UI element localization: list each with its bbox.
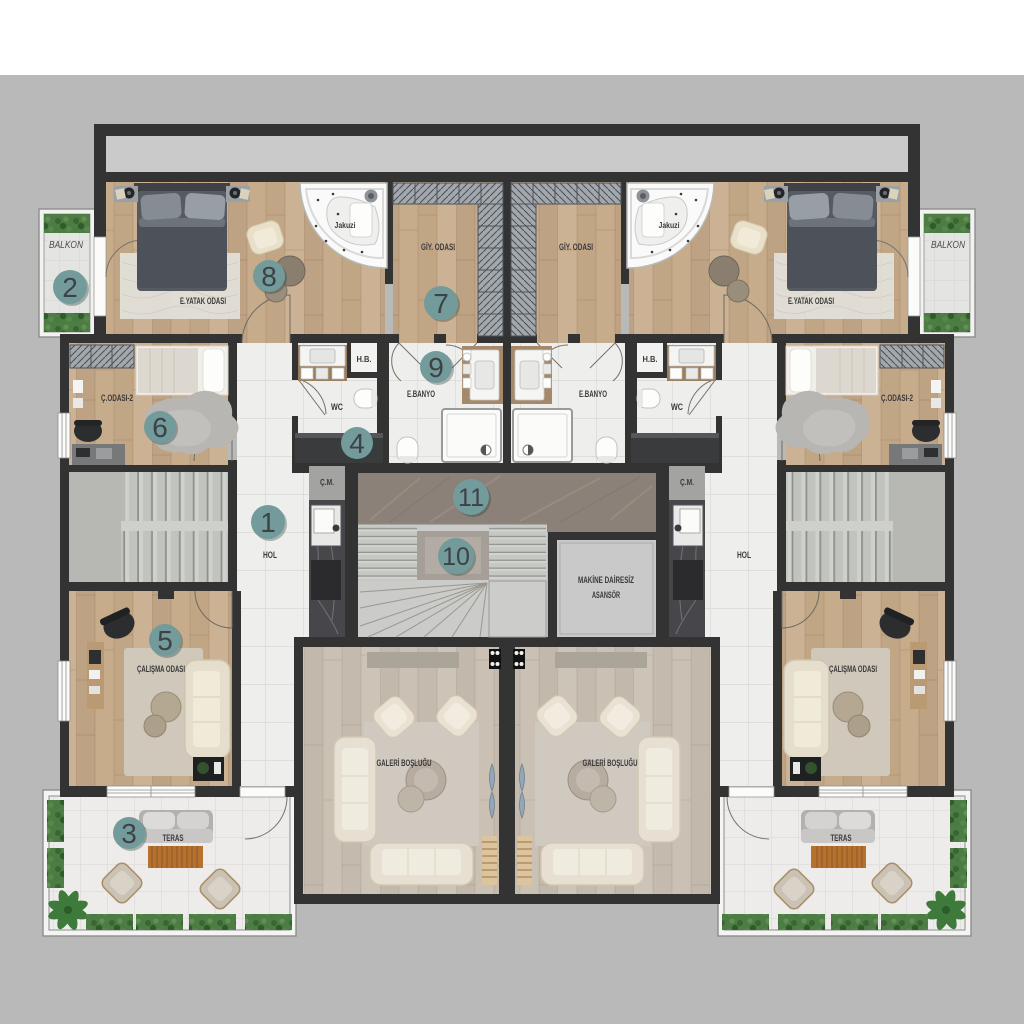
svg-text:H.B.: H.B. bbox=[357, 355, 372, 364]
svg-text:WC: WC bbox=[331, 402, 343, 413]
svg-text:GALERİ BOŞLUĞU: GALERİ BOŞLUĞU bbox=[583, 757, 638, 769]
svg-text:H.B.: H.B. bbox=[643, 355, 658, 364]
svg-text:Ç.M.: Ç.M. bbox=[320, 478, 334, 487]
svg-text:E.YATAK ODASI: E.YATAK ODASI bbox=[180, 296, 226, 307]
svg-text:3: 3 bbox=[121, 818, 137, 849]
svg-text:9: 9 bbox=[428, 352, 444, 383]
svg-text:2: 2 bbox=[62, 272, 78, 303]
svg-text:GALERİ BOŞLUĞU: GALERİ BOŞLUĞU bbox=[377, 757, 432, 769]
svg-text:HOL: HOL bbox=[263, 550, 277, 561]
svg-text:E.YATAK ODASI: E.YATAK ODASI bbox=[788, 296, 834, 307]
svg-text:BALKON: BALKON bbox=[931, 240, 966, 251]
svg-text:GİY. ODASI: GİY. ODASI bbox=[559, 242, 593, 253]
svg-text:8: 8 bbox=[261, 261, 277, 292]
svg-text:ASANSÖR: ASANSÖR bbox=[592, 590, 620, 601]
svg-text:BALKON: BALKON bbox=[49, 240, 84, 251]
svg-text:5: 5 bbox=[157, 625, 173, 656]
svg-text:ÇALIŞMA ODASI: ÇALIŞMA ODASI bbox=[829, 664, 877, 675]
svg-text:Ç.ODASI-2: Ç.ODASI-2 bbox=[881, 393, 913, 404]
svg-text:Ç.M.: Ç.M. bbox=[680, 478, 694, 487]
svg-text:Jakuzi: Jakuzi bbox=[335, 221, 356, 230]
svg-text:WC: WC bbox=[671, 402, 683, 413]
svg-text:1: 1 bbox=[260, 507, 276, 538]
svg-text:E.BANYO: E.BANYO bbox=[407, 389, 435, 400]
svg-text:MAKİNE DAİRESİZ: MAKİNE DAİRESİZ bbox=[578, 575, 634, 586]
svg-text:4: 4 bbox=[349, 428, 365, 459]
svg-text:Ç.ODASI-2: Ç.ODASI-2 bbox=[101, 393, 133, 404]
svg-text:10: 10 bbox=[442, 543, 470, 571]
svg-text:11: 11 bbox=[458, 484, 484, 512]
svg-text:HOL: HOL bbox=[737, 550, 751, 561]
svg-text:TERAS: TERAS bbox=[163, 833, 184, 844]
svg-text:Jakuzi: Jakuzi bbox=[659, 221, 680, 230]
svg-text:GİY. ODASI: GİY. ODASI bbox=[421, 242, 455, 253]
svg-text:E.BANYO: E.BANYO bbox=[579, 389, 607, 400]
svg-text:TERAS: TERAS bbox=[831, 833, 852, 844]
svg-text:ÇALIŞMA ODASI: ÇALIŞMA ODASI bbox=[137, 664, 185, 675]
svg-text:7: 7 bbox=[433, 288, 449, 319]
svg-text:6: 6 bbox=[152, 412, 168, 443]
